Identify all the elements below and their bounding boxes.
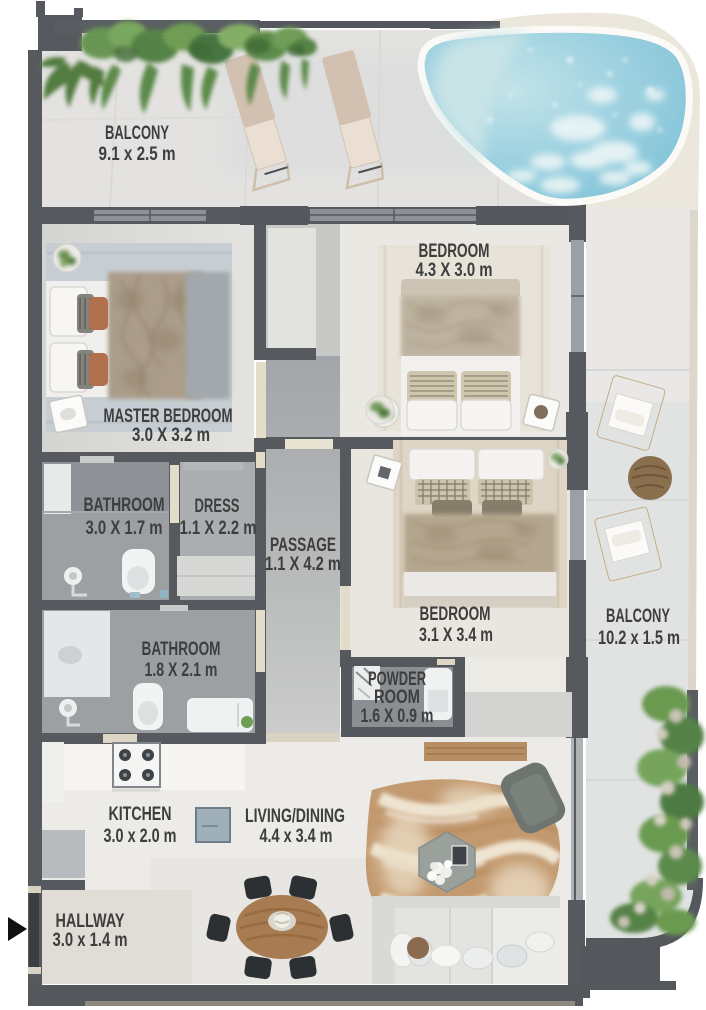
svg-text:4.4 x 3.4 m: 4.4 x 3.4 m: [260, 825, 333, 847]
svg-text:KITCHEN: KITCHEN: [109, 803, 172, 825]
svg-text:BATHROOM: BATHROOM: [84, 494, 165, 516]
svg-text:1.1 X 4.2 m: 1.1 X 4.2 m: [265, 553, 341, 575]
svg-text:BEDROOM: BEDROOM: [420, 603, 491, 625]
svg-text:3.0 x 1.4 m: 3.0 x 1.4 m: [53, 929, 128, 951]
svg-text:10.2 x 1.5 m: 10.2 x 1.5 m: [598, 627, 680, 649]
svg-text:3.1 X 3.4 m: 3.1 X 3.4 m: [419, 624, 493, 646]
svg-text:4.3 X 3.0 m: 4.3 X 3.0 m: [416, 259, 493, 281]
svg-text:3.0 X 3.2 m: 3.0 X 3.2 m: [132, 424, 210, 446]
svg-text:DRESS: DRESS: [195, 495, 240, 517]
svg-text:1.1 X 2.2 m: 1.1 X 2.2 m: [180, 517, 257, 539]
svg-text:1.6 X 0.9 m: 1.6 X 0.9 m: [361, 705, 434, 727]
svg-text:1.8 X 2.1 m: 1.8 X 2.1 m: [145, 659, 218, 681]
svg-text:3.0 x 2.0 m: 3.0 x 2.0 m: [104, 825, 177, 847]
svg-text:LIVING/DINING: LIVING/DINING: [245, 805, 345, 827]
svg-text:9.1 x 2.5 m: 9.1 x 2.5 m: [99, 143, 176, 165]
svg-text:BATHROOM: BATHROOM: [142, 638, 221, 660]
svg-text:BALCONY: BALCONY: [105, 122, 169, 144]
svg-text:3.0 X 1.7 m: 3.0 X 1.7 m: [86, 517, 163, 539]
svg-text:BALCONY: BALCONY: [606, 605, 670, 627]
